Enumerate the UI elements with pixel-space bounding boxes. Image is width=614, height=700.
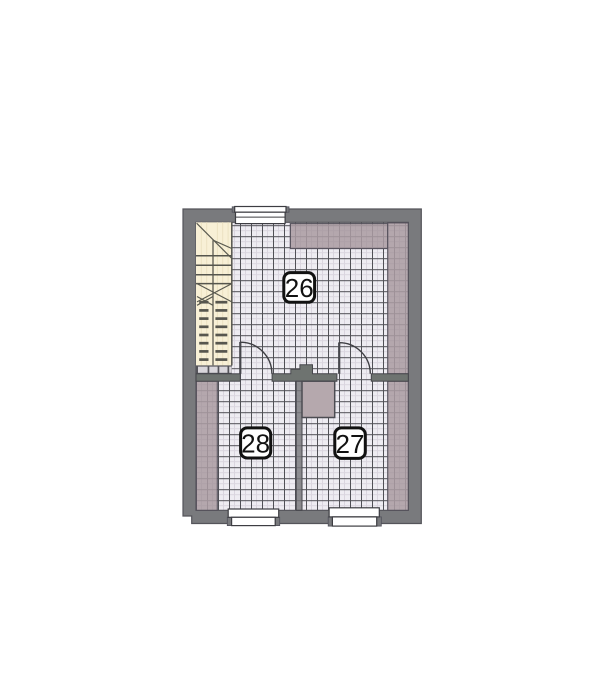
svg-text:26: 26 [285, 273, 314, 303]
svg-text:28: 28 [241, 429, 270, 459]
svg-text:27: 27 [336, 429, 365, 459]
